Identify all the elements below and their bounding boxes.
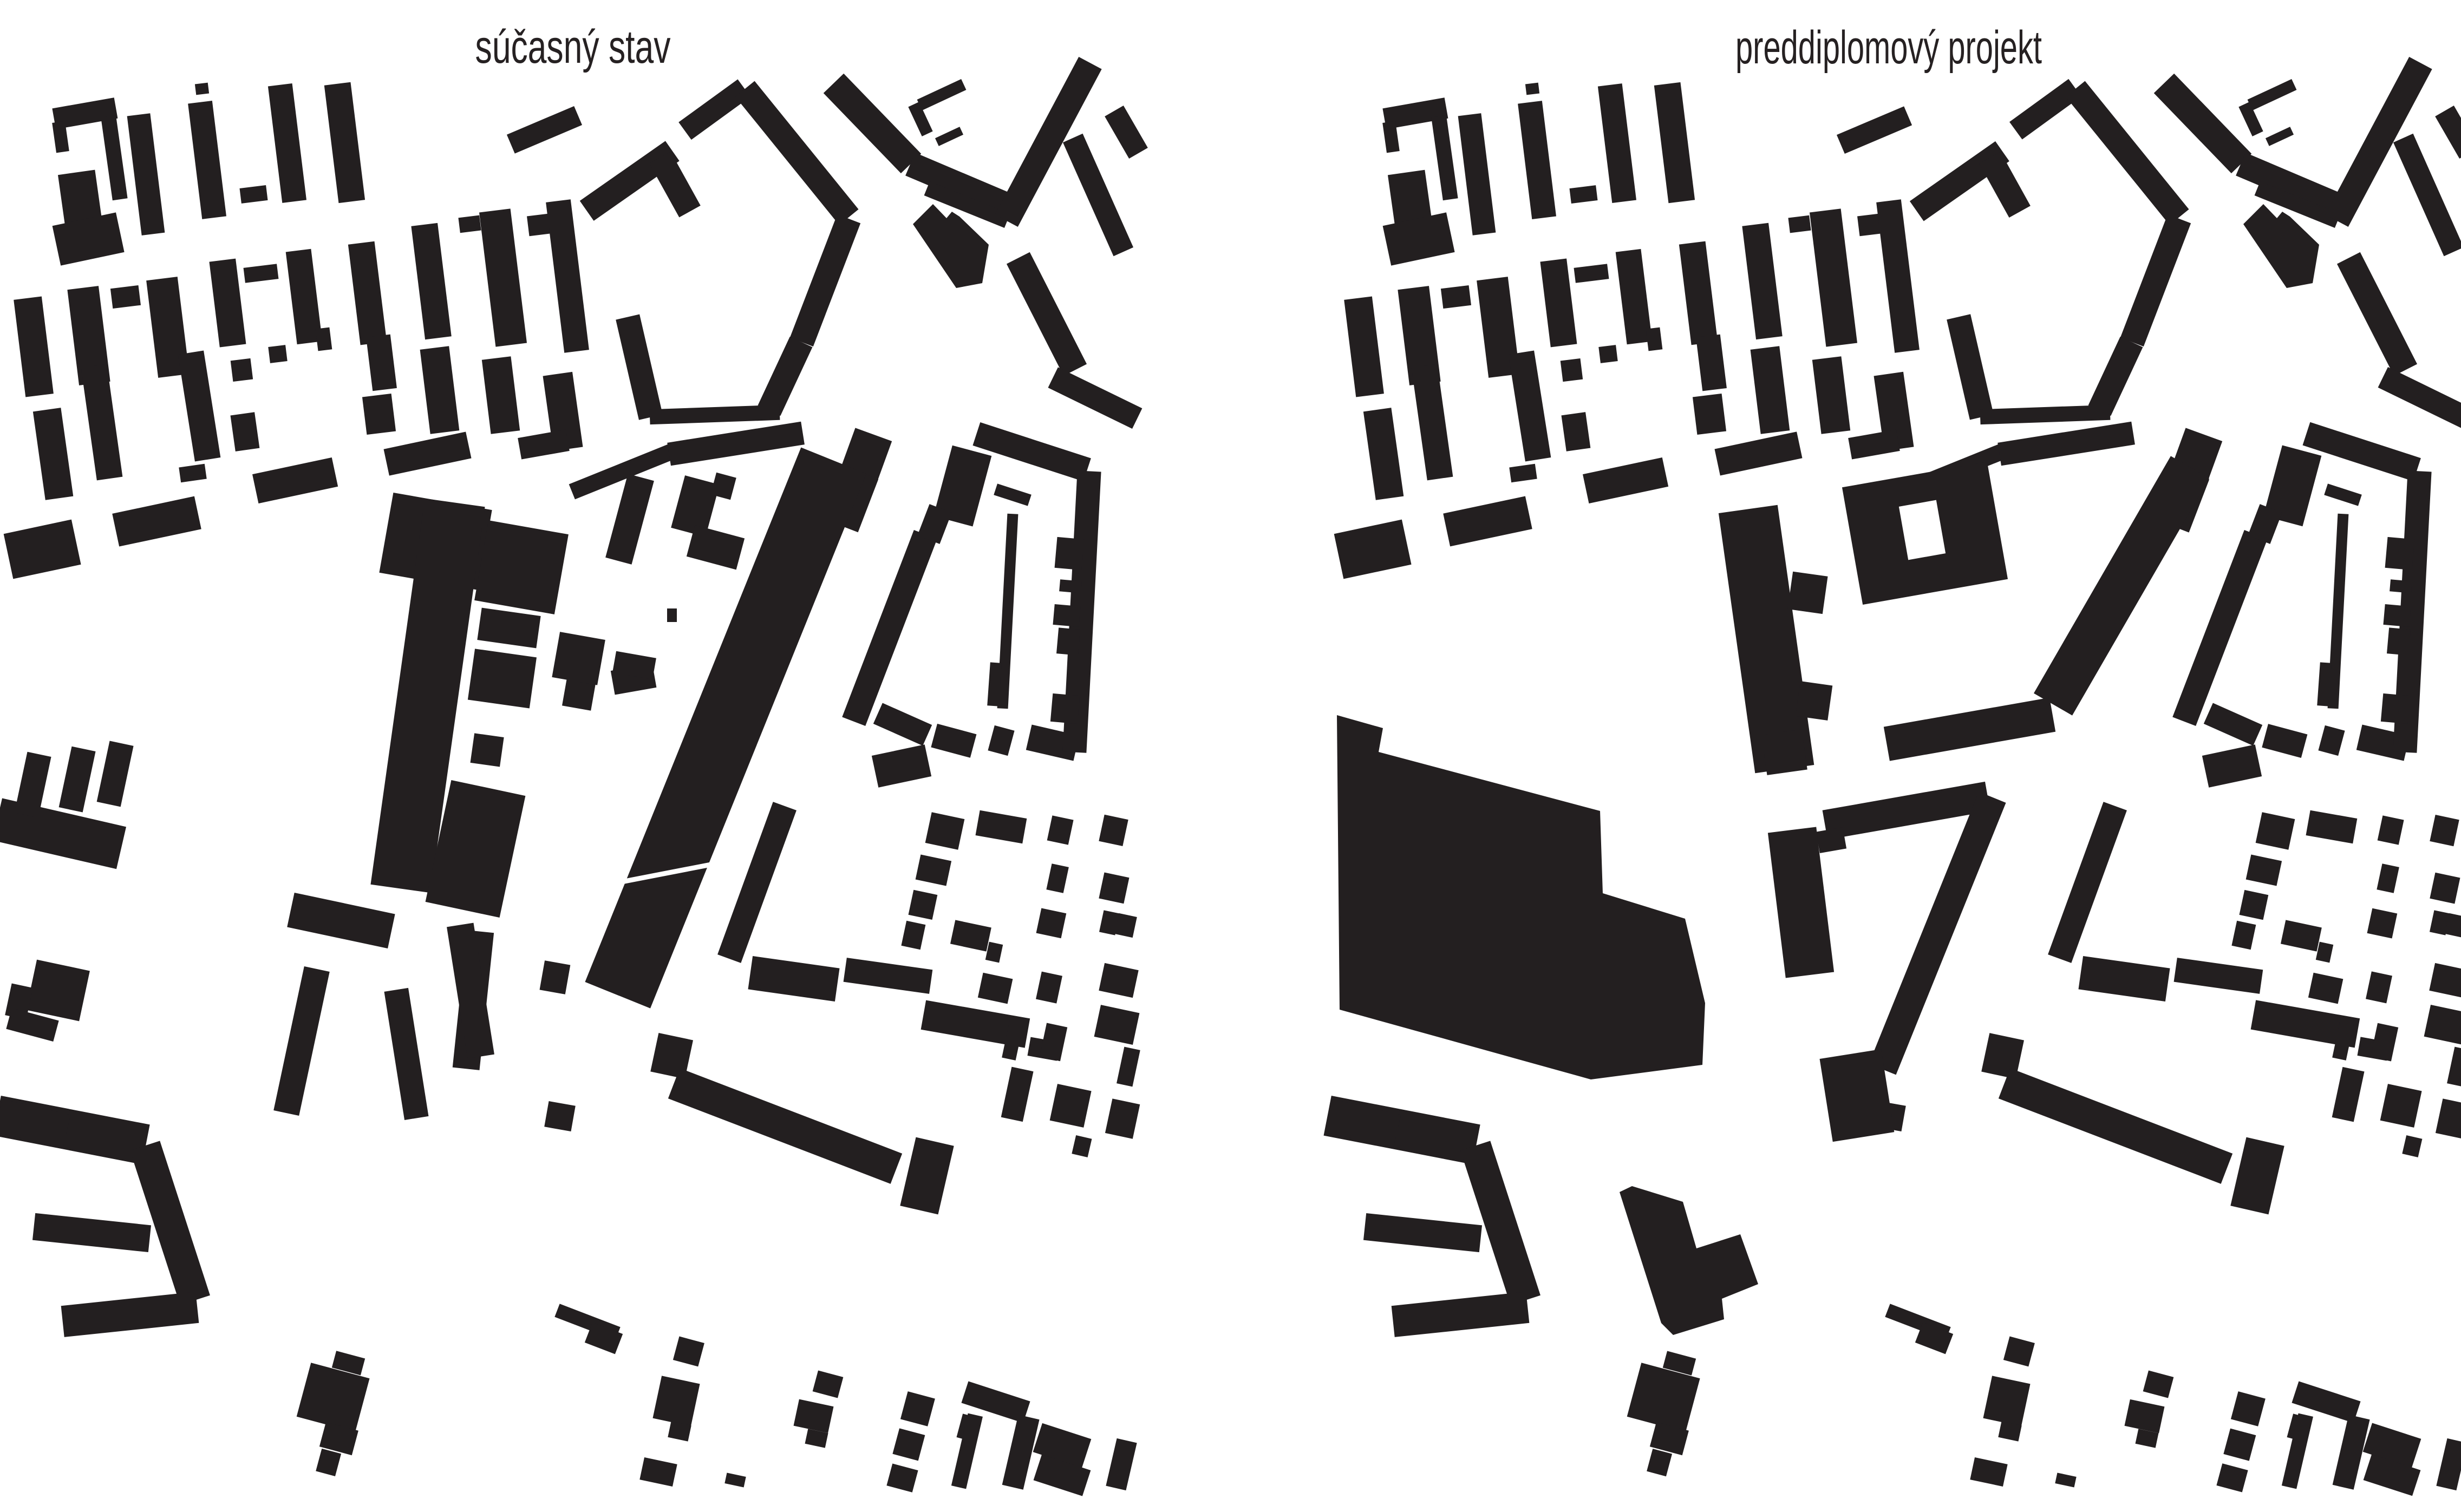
- svg-text:preddiplomový projekt: preddiplomový projekt: [1735, 22, 2042, 74]
- svg-text:súčasný stav: súčasný stav: [475, 21, 671, 73]
